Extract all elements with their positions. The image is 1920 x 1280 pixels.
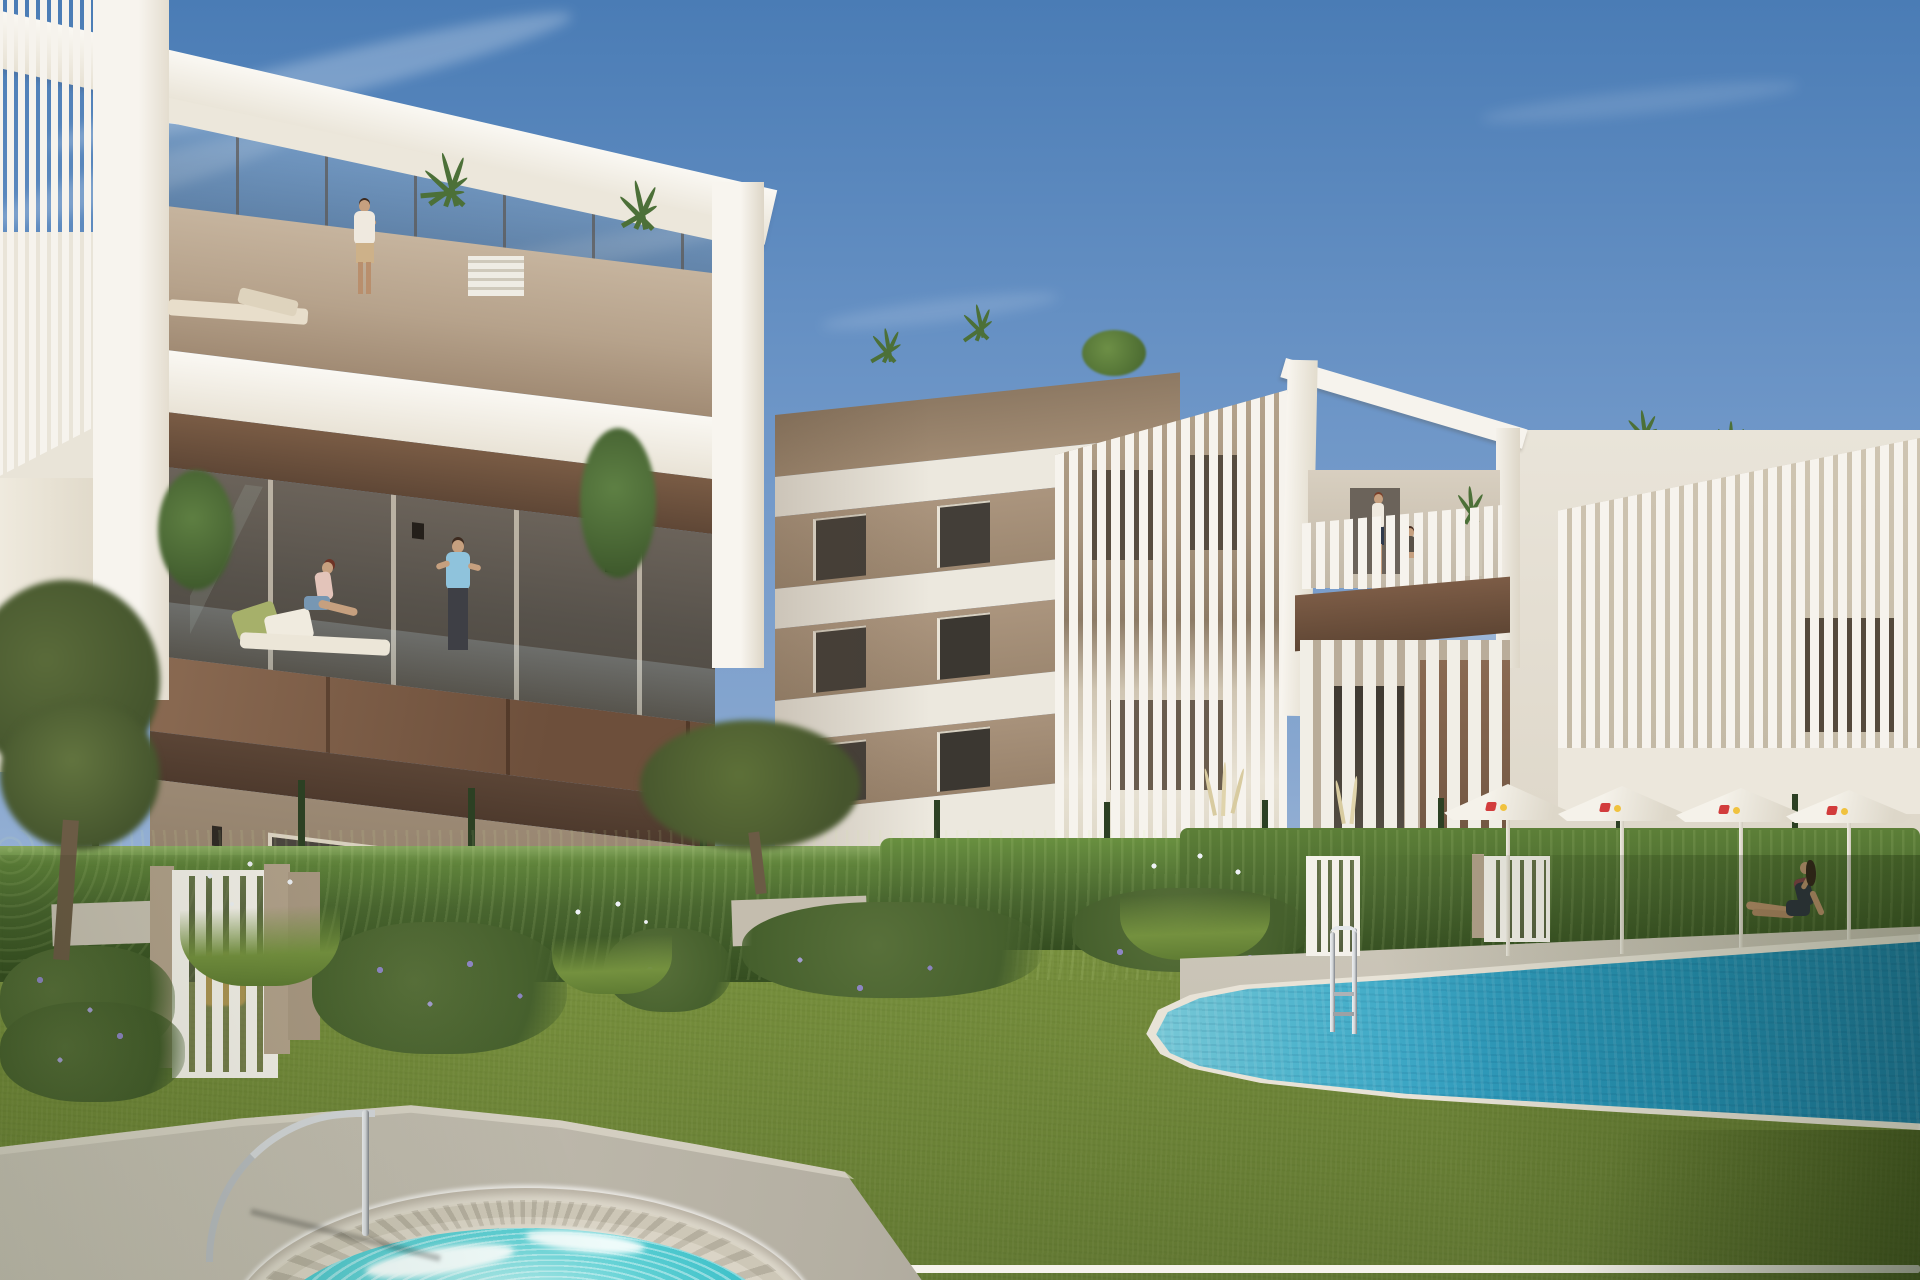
ladder-handle xyxy=(1330,926,1357,940)
window xyxy=(937,726,990,792)
ladder-rail xyxy=(1352,928,1357,1034)
window xyxy=(937,612,990,680)
foliage xyxy=(158,470,234,590)
umbrella-logo-red xyxy=(1599,803,1611,812)
rooftop-ac-unit xyxy=(468,256,524,296)
white-iris-clump xyxy=(180,856,340,986)
umbrella-logo-yellow xyxy=(1500,804,1507,811)
person-man-balcony xyxy=(434,540,484,660)
umbrella-logo-red xyxy=(1718,805,1730,814)
umbrella-logo-red xyxy=(1826,806,1838,815)
ladder-step xyxy=(1333,1012,1354,1016)
foliage xyxy=(640,720,860,850)
rooftop-shrub xyxy=(1082,330,1146,376)
olive-tree-center xyxy=(640,720,880,910)
umbrella-canopy xyxy=(1558,786,1686,821)
umbrella-canopy xyxy=(1786,790,1912,823)
rooftop-lounger xyxy=(168,286,318,332)
foliage xyxy=(0,700,160,850)
balcony-plant xyxy=(576,428,660,658)
rooftop-palm xyxy=(598,172,678,282)
person-woman-balcony xyxy=(296,560,366,656)
white-iris-clump xyxy=(552,898,672,994)
polo-blue xyxy=(446,552,470,590)
foliage xyxy=(580,428,656,578)
flowerbed-purple xyxy=(742,902,1042,998)
person-man-rooftop xyxy=(348,200,382,302)
scene-architectural-render xyxy=(0,0,1920,1280)
left-frame-right-post xyxy=(712,182,764,668)
person-woman-sunbathing xyxy=(1742,862,1852,932)
flowerbed-purple xyxy=(312,922,567,1054)
pool-ladder xyxy=(1326,926,1366,1044)
folded-legs xyxy=(318,599,359,616)
umbrella-logo-yellow xyxy=(1614,805,1621,812)
long-hair xyxy=(1806,860,1816,886)
trousers xyxy=(448,588,468,650)
balcony-downlight xyxy=(412,522,424,539)
flowerbed-purple xyxy=(0,1002,185,1102)
shorts xyxy=(356,243,374,263)
rooftop-palm xyxy=(948,300,1008,370)
legs xyxy=(358,262,363,294)
rooftop-palm xyxy=(856,322,916,392)
rooftop-palm xyxy=(402,142,492,262)
spa-handrail-post xyxy=(362,1110,369,1236)
main-pool xyxy=(1140,930,1920,1135)
olive-tree-left xyxy=(0,580,190,980)
umbrella-logo-yellow xyxy=(1841,808,1848,815)
pampas-grass xyxy=(1188,768,1268,908)
ladder-step xyxy=(1333,992,1354,996)
ladder-rail xyxy=(1330,932,1335,1032)
umbrella-logo-yellow xyxy=(1733,807,1740,814)
umbrella-canopy xyxy=(1444,784,1572,820)
umbrella-logo-red xyxy=(1485,802,1497,811)
tshirt xyxy=(354,211,375,245)
window xyxy=(937,500,990,568)
